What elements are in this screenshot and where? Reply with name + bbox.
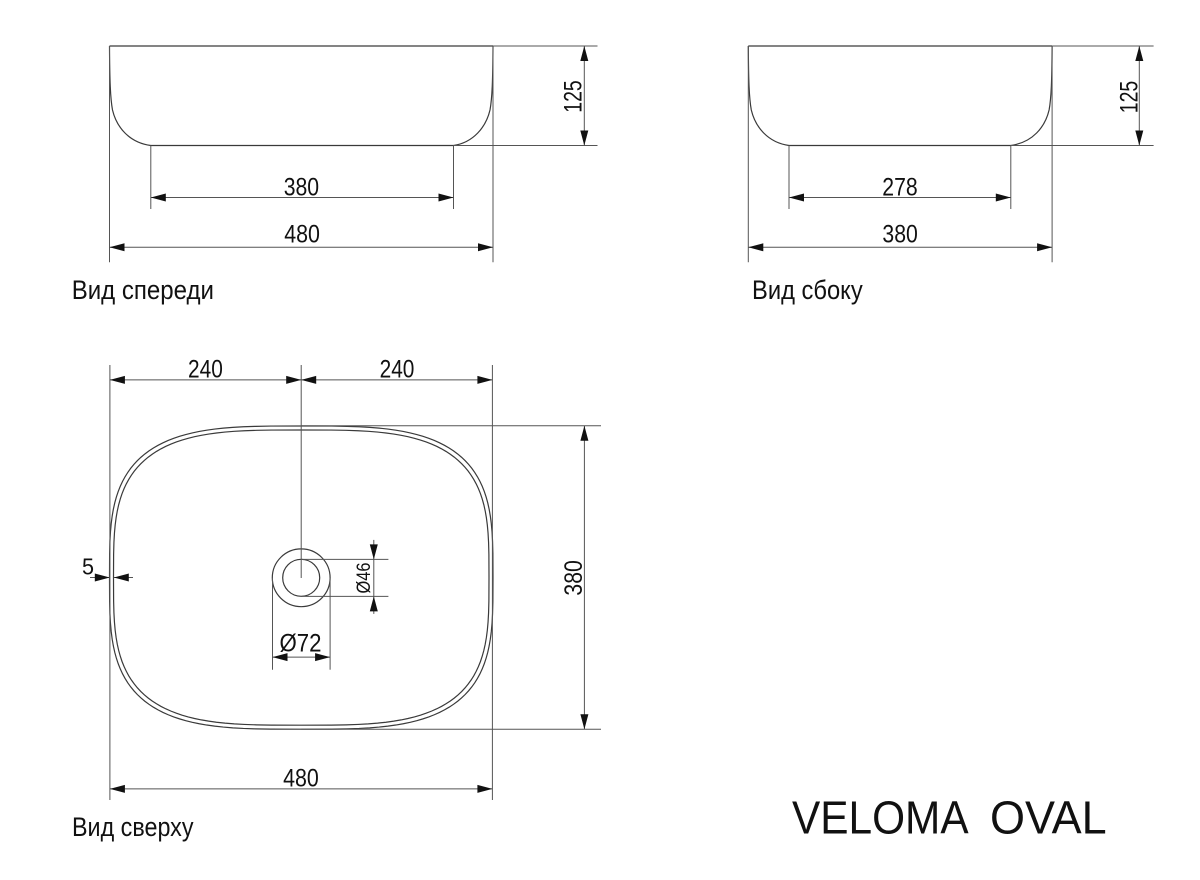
svg-text:Ø72: Ø72 xyxy=(280,629,322,657)
svg-text:125: 125 xyxy=(559,80,587,112)
svg-text:380: 380 xyxy=(882,221,917,249)
svg-text:278: 278 xyxy=(882,174,917,202)
svg-text:5: 5 xyxy=(82,554,94,580)
svg-text:VELOMA: VELOMA xyxy=(792,791,969,843)
svg-text:380: 380 xyxy=(284,174,319,202)
svg-text:380: 380 xyxy=(560,560,588,595)
svg-text:480: 480 xyxy=(284,221,320,249)
svg-text:240: 240 xyxy=(188,356,223,384)
svg-text:Вид сбоку: Вид сбоку xyxy=(752,275,863,305)
svg-text:Вид спереди: Вид спереди xyxy=(72,275,214,305)
svg-text:Вид сверху: Вид сверху xyxy=(72,812,194,842)
svg-text:480: 480 xyxy=(283,765,319,793)
svg-text:Ø46: Ø46 xyxy=(353,563,375,594)
svg-text:125: 125 xyxy=(1116,81,1144,113)
svg-text:OVAL: OVAL xyxy=(990,791,1107,843)
svg-text:240: 240 xyxy=(380,356,415,384)
